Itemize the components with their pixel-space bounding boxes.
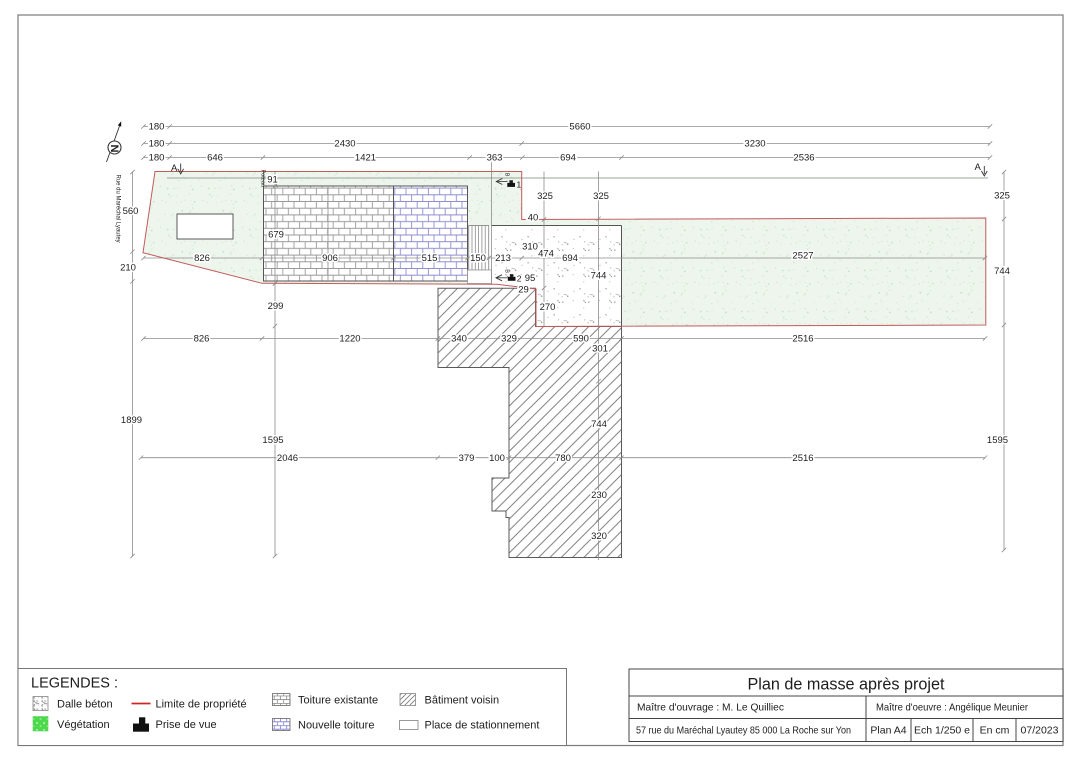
svg-text:329: 329 — [501, 334, 517, 345]
svg-text:Toiture existante: Toiture existante — [298, 695, 378, 707]
svg-text:2430: 2430 — [334, 139, 355, 150]
svg-text:100: 100 — [489, 453, 505, 464]
svg-text:A: A — [975, 162, 982, 173]
svg-text:744: 744 — [591, 271, 607, 282]
svg-text:Rue du Maréchal Lyautey: Rue du Maréchal Lyautey — [114, 175, 120, 243]
svg-text:180: 180 — [149, 122, 165, 133]
svg-text:780: 780 — [555, 453, 571, 464]
svg-text:1899: 1899 — [121, 415, 142, 426]
svg-text:07/2023: 07/2023 — [1021, 725, 1059, 737]
svg-text:LEGENDES :: LEGENDES : — [31, 676, 118, 692]
svg-text:57 rue du Maréchal Lyautey 85: 57 rue du Maréchal Lyautey 85 000 La Roc… — [636, 725, 851, 737]
svg-text:2527: 2527 — [792, 251, 813, 262]
svg-text:Plan A4: Plan A4 — [870, 725, 906, 737]
svg-text:1421: 1421 — [355, 153, 376, 164]
svg-text:N: N — [110, 145, 122, 153]
svg-text:B: B — [504, 173, 510, 177]
svg-text:Place de stationnement: Place de stationnement — [425, 720, 540, 732]
svg-text:310: 310 — [522, 242, 538, 253]
svg-text:Plan de masse après projet: Plan de masse après projet — [748, 675, 945, 694]
svg-text:320: 320 — [591, 531, 607, 542]
svg-text:91: 91 — [267, 175, 278, 186]
svg-text:694: 694 — [560, 153, 576, 164]
svg-text:Maître d'ouvrage : M. Le Quill: Maître d'ouvrage : M. Le Quilliec — [637, 702, 784, 714]
svg-text:1: 1 — [517, 180, 522, 190]
svg-text:2516: 2516 — [792, 453, 813, 464]
svg-text:180: 180 — [149, 153, 165, 164]
svg-text:Nouvelle toiture: Nouvelle toiture — [298, 720, 374, 732]
svg-text:474: 474 — [538, 249, 554, 260]
svg-text:1595: 1595 — [262, 435, 283, 446]
svg-text:2536: 2536 — [793, 153, 814, 164]
svg-text:A: A — [171, 163, 178, 174]
svg-text:694: 694 — [562, 253, 578, 264]
svg-text:210: 210 — [120, 263, 136, 274]
svg-text:515: 515 — [422, 253, 438, 264]
svg-text:En cm: En cm — [980, 725, 1010, 737]
svg-text:Limite de propriété: Limite de propriété — [156, 699, 247, 711]
svg-text:213: 213 — [495, 253, 511, 264]
svg-text:744: 744 — [591, 419, 607, 430]
svg-text:325: 325 — [537, 191, 553, 202]
svg-text:363: 363 — [487, 153, 503, 164]
svg-text:299: 299 — [268, 301, 284, 312]
svg-text:Ech 1/250 e: Ech 1/250 e — [914, 725, 970, 737]
svg-text:744: 744 — [994, 266, 1010, 277]
svg-text:646: 646 — [207, 153, 223, 164]
svg-text:230: 230 — [591, 490, 607, 501]
svg-text:379: 379 — [459, 453, 475, 464]
svg-text:5660: 5660 — [569, 122, 590, 133]
svg-text:Prise de vue: Prise de vue — [156, 719, 217, 731]
svg-text:2046: 2046 — [277, 453, 298, 464]
svg-text:560: 560 — [123, 206, 139, 217]
svg-text:590: 590 — [573, 334, 589, 345]
svg-text:95: 95 — [525, 273, 536, 284]
svg-text:Dalle béton: Dalle béton — [57, 699, 113, 711]
svg-text:B: B — [504, 269, 510, 273]
svg-text:2: 2 — [517, 273, 522, 283]
svg-text:Maître d'oeuvre : Angélique Me: Maître d'oeuvre : Angélique Meunier — [876, 702, 1028, 714]
svg-text:180: 180 — [149, 139, 165, 150]
svg-text:906: 906 — [322, 253, 338, 264]
svg-text:301: 301 — [592, 344, 608, 355]
svg-text:Végétation: Végétation — [57, 719, 110, 731]
svg-text:679: 679 — [268, 230, 284, 241]
svg-text:1595: 1595 — [987, 435, 1008, 446]
svg-text:826: 826 — [194, 334, 210, 345]
svg-text:270: 270 — [540, 302, 556, 313]
svg-text:150: 150 — [470, 253, 486, 264]
svg-text:Poteau: Poteau — [260, 170, 266, 187]
svg-text:340: 340 — [451, 334, 467, 345]
svg-text:40: 40 — [528, 213, 539, 224]
svg-text:325: 325 — [994, 191, 1010, 202]
svg-text:3230: 3230 — [744, 139, 765, 150]
svg-text:826: 826 — [194, 253, 210, 264]
svg-text:325: 325 — [593, 191, 609, 202]
svg-text:2516: 2516 — [792, 334, 813, 345]
svg-text:1220: 1220 — [339, 334, 360, 345]
svg-text:Bâtiment voisin: Bâtiment voisin — [425, 695, 500, 707]
svg-text:29: 29 — [518, 285, 529, 296]
